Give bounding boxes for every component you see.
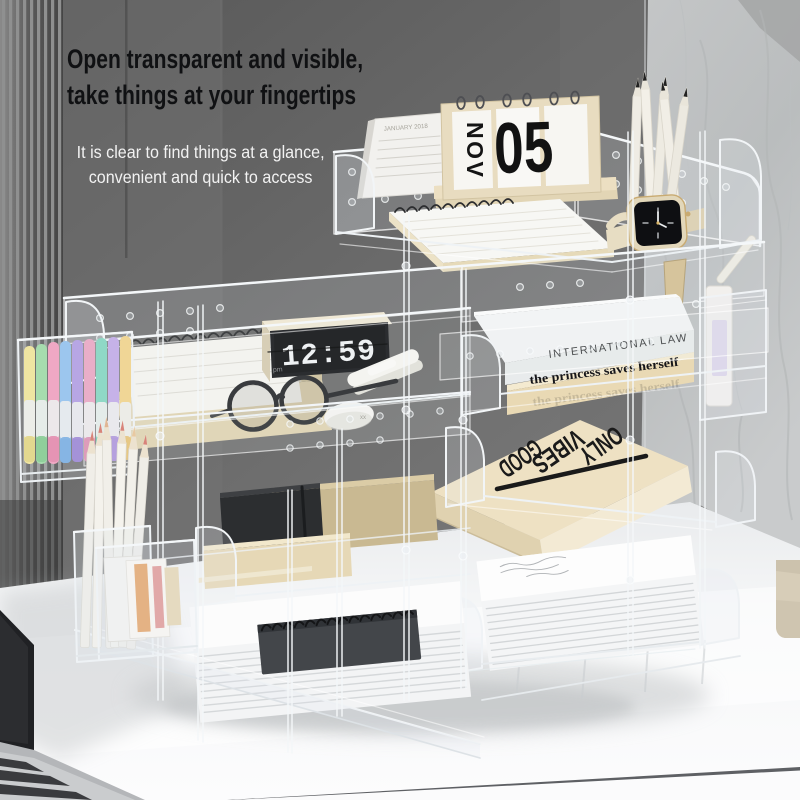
svg-text:NOV: NOV (462, 122, 488, 179)
svg-text:05: 05 (493, 107, 555, 189)
